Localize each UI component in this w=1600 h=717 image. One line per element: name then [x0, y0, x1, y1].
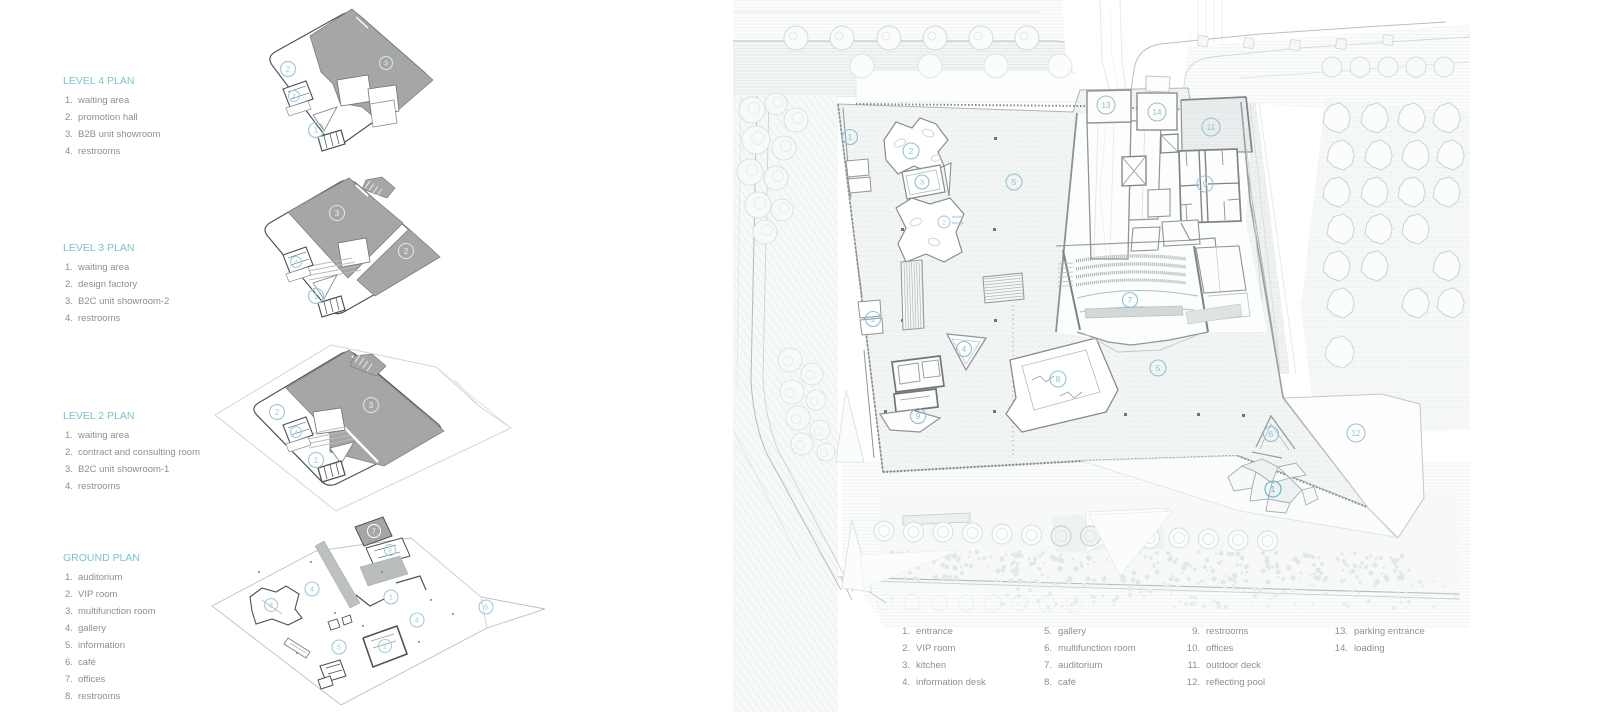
svg-text:2: 2 [404, 247, 409, 256]
svg-text:6: 6 [484, 603, 488, 612]
svg-text:1.: 1. [65, 430, 73, 441]
svg-text:4: 4 [294, 259, 298, 266]
svg-text:VIP room: VIP room [78, 589, 118, 600]
svg-text:reflecting pool: reflecting pool [1206, 677, 1265, 688]
svg-text:9: 9 [916, 412, 921, 421]
svg-text:1: 1 [389, 593, 393, 602]
svg-text:LEVEL 3 PLAN: LEVEL 3 PLAN [63, 242, 134, 254]
svg-text:3.: 3. [65, 606, 73, 617]
svg-text:café: café [1058, 677, 1076, 688]
svg-text:2: 2 [909, 146, 914, 156]
svg-text:6: 6 [1269, 430, 1274, 439]
svg-text:9.: 9. [1192, 626, 1200, 637]
svg-text:contract and consulting room: contract and consulting room [78, 447, 200, 458]
svg-text:3.: 3. [902, 660, 910, 671]
svg-text:LEVEL 2 PLAN: LEVEL 2 PLAN [63, 410, 134, 422]
svg-text:4: 4 [292, 93, 296, 100]
svg-text:restrooms: restrooms [78, 313, 120, 324]
svg-text:9: 9 [1203, 179, 1208, 189]
svg-text:waiting area: waiting area [77, 430, 130, 441]
svg-text:2: 2 [275, 408, 280, 417]
svg-text:4: 4 [294, 429, 298, 436]
svg-text:restrooms: restrooms [78, 481, 120, 492]
svg-text:1: 1 [383, 644, 387, 651]
svg-text:kitchen: kitchen [916, 660, 946, 671]
svg-text:3: 3 [384, 61, 388, 68]
svg-text:5.: 5. [65, 640, 73, 651]
svg-text:lounge: lounge [952, 220, 965, 225]
svg-text:5: 5 [337, 643, 341, 652]
svg-text:parking entrance: parking entrance [1354, 626, 1425, 637]
svg-text:14.: 14. [1335, 643, 1348, 654]
svg-text:7: 7 [1128, 296, 1133, 305]
svg-text:loading: loading [1354, 643, 1385, 654]
svg-text:10.: 10. [1187, 643, 1200, 654]
svg-text:design factory: design factory [78, 279, 137, 290]
svg-text:2.: 2. [65, 279, 73, 290]
svg-text:multifunction room: multifunction room [1058, 643, 1136, 654]
svg-text:6.: 6. [1044, 643, 1052, 654]
svg-text:5: 5 [1012, 177, 1017, 187]
svg-text:1.: 1. [65, 572, 73, 583]
svg-text:12.: 12. [1187, 677, 1200, 688]
svg-text:2.: 2. [65, 112, 73, 123]
svg-text:offices: offices [1206, 643, 1234, 654]
svg-text:5.: 5. [1044, 626, 1052, 637]
svg-text:13: 13 [1102, 101, 1111, 110]
svg-text:11.: 11. [1187, 660, 1200, 671]
svg-text:8.: 8. [1044, 677, 1052, 688]
svg-text:12: 12 [1352, 429, 1361, 438]
svg-text:3: 3 [369, 401, 374, 410]
svg-text:B2C unit showroom-1: B2C unit showroom-1 [78, 464, 169, 475]
svg-text:promotion hall: promotion hall [78, 112, 138, 123]
svg-text:4.: 4. [65, 623, 73, 634]
svg-text:14: 14 [1153, 108, 1162, 117]
svg-text:GROUND PLAN: GROUND PLAN [63, 552, 140, 564]
svg-text:waiting area: waiting area [77, 262, 130, 273]
svg-text:2.: 2. [65, 447, 73, 458]
svg-text:13.: 13. [1335, 626, 1348, 637]
svg-text:4.: 4. [65, 313, 73, 324]
svg-text:restrooms: restrooms [78, 146, 120, 157]
svg-text:auditorium: auditorium [78, 572, 122, 583]
svg-text:8: 8 [1056, 374, 1061, 384]
svg-text:café: café [78, 657, 96, 668]
svg-text:4: 4 [310, 585, 314, 594]
svg-text:multifunction room: multifunction room [78, 606, 156, 617]
svg-text:information: information [78, 640, 125, 651]
svg-text:11: 11 [1207, 123, 1216, 132]
svg-text:entrance: entrance [916, 626, 953, 637]
svg-text:2.: 2. [902, 643, 910, 654]
svg-text:gallery: gallery [1058, 626, 1086, 637]
svg-text:atelier: atelier [952, 214, 964, 219]
svg-text:2: 2 [286, 65, 291, 74]
svg-text:LEVEL 4 PLAN: LEVEL 4 PLAN [63, 75, 134, 87]
svg-text:1: 1 [314, 126, 319, 135]
svg-text:1: 1 [314, 456, 319, 465]
svg-text:2: 2 [942, 219, 946, 226]
svg-text:1: 1 [314, 292, 319, 301]
svg-text:1: 1 [1271, 484, 1276, 494]
svg-text:B2B unit showroom: B2B unit showroom [78, 129, 160, 140]
svg-text:3: 3 [335, 209, 340, 218]
svg-text:4.: 4. [65, 146, 73, 157]
svg-text:1.: 1. [65, 262, 73, 273]
svg-text:1: 1 [848, 133, 853, 142]
svg-text:2.: 2. [65, 589, 73, 600]
svg-text:1.: 1. [65, 95, 73, 106]
svg-text:auditorium: auditorium [1058, 660, 1102, 671]
svg-text:7.: 7. [1044, 660, 1052, 671]
svg-text:3.: 3. [65, 464, 73, 475]
svg-text:4: 4 [415, 616, 419, 625]
svg-text:4: 4 [962, 345, 967, 354]
svg-text:3: 3 [269, 603, 273, 610]
svg-text:waiting area: waiting area [77, 95, 130, 106]
svg-text:VIP room: VIP room [916, 643, 956, 654]
svg-text:5: 5 [1156, 363, 1161, 373]
svg-text:3.: 3. [65, 129, 73, 140]
svg-text:information desk: information desk [916, 677, 986, 688]
svg-text:1.: 1. [902, 626, 910, 637]
svg-text:1: 1 [871, 315, 876, 324]
svg-text:3.: 3. [65, 296, 73, 307]
svg-text:3: 3 [920, 178, 924, 187]
svg-text:offices: offices [78, 674, 106, 685]
svg-text:outdoor deck: outdoor deck [1206, 660, 1261, 671]
svg-text:8.: 8. [65, 691, 73, 702]
svg-text:4.: 4. [902, 677, 910, 688]
svg-text:restrooms: restrooms [78, 691, 120, 702]
svg-text:7.: 7. [65, 674, 73, 685]
svg-text:7: 7 [372, 529, 376, 536]
svg-text:8: 8 [388, 547, 392, 554]
svg-text:restrooms: restrooms [1206, 626, 1248, 637]
svg-text:6.: 6. [65, 657, 73, 668]
svg-text:B2C unit showroom-2: B2C unit showroom-2 [78, 296, 169, 307]
svg-text:4.: 4. [65, 481, 73, 492]
svg-text:gallery: gallery [78, 623, 106, 634]
